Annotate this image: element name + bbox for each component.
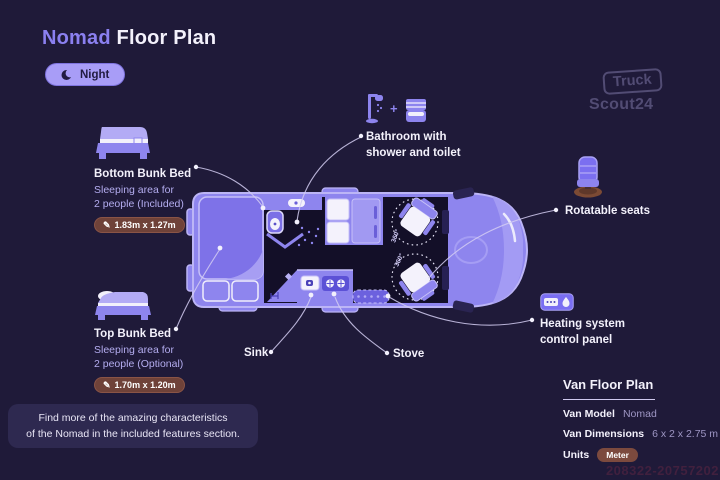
features-note-line-2: of the Nomad in the included features se… xyxy=(8,426,258,442)
units-label: Units xyxy=(563,449,589,461)
spec-row-dimensions: Van Dimensions 6 x 2 x 2.75 m xyxy=(563,428,718,440)
shower-screen xyxy=(267,234,303,247)
van-interior: 360° 360° xyxy=(199,187,523,313)
swivel-seats: 360° 360° xyxy=(389,192,443,307)
van-model-value: Nomad xyxy=(623,408,657,420)
bottom-bunk-title: Bottom Bunk Bed xyxy=(94,168,191,180)
dinette-cushion xyxy=(327,199,349,220)
van-dimensions-label: Van Dimensions xyxy=(563,428,644,440)
page-title-rest: Floor Plan xyxy=(111,27,217,49)
top-bunk-dimensions: 1.70m x 1.20m xyxy=(115,380,176,390)
night-mode-label: Night xyxy=(80,69,109,81)
top-bunk-title: Top Bunk Bed xyxy=(94,328,185,340)
bathroom-label-1: Bathroom with xyxy=(366,130,461,146)
roof-tab xyxy=(322,188,358,195)
callout-bathroom: + Bathroom with shower and toilet xyxy=(366,90,461,161)
rotation-label-rear: 360° xyxy=(393,252,406,268)
cab-console xyxy=(455,237,487,263)
swivel-seat-rear xyxy=(395,258,443,307)
pencil-icon: ✎ xyxy=(103,381,111,390)
rotation-circle-rear xyxy=(392,254,438,300)
page-title-model: Nomad xyxy=(42,27,111,49)
entry-step xyxy=(353,290,389,303)
stove-label: Stove xyxy=(393,347,424,363)
side-tab xyxy=(322,305,358,312)
stove-burners xyxy=(322,276,349,291)
top-bunk-desc-2: 2 people (Optional) xyxy=(94,357,185,371)
callout-top-bunk: Top Bunk Bed Sleeping area for 2 people … xyxy=(94,288,185,393)
spec-row-model: Van Model Nomad xyxy=(563,408,718,420)
heating-label-1: Heating system xyxy=(540,317,625,333)
connector-dots xyxy=(174,134,558,355)
shower-icon xyxy=(366,90,384,124)
features-note: Find more of the amazing characteristics… xyxy=(8,404,258,448)
kitchen-counter xyxy=(267,270,389,303)
plus-sign: + xyxy=(390,101,398,116)
callout-rotatable-seats: Rotatable seats xyxy=(565,155,650,220)
van-model-label: Van Model xyxy=(563,408,615,420)
shower-spray xyxy=(298,227,319,246)
heating-label-2: control panel xyxy=(540,333,625,349)
pillow xyxy=(203,281,229,301)
connector-lines xyxy=(176,137,556,353)
vanity-sink xyxy=(288,199,305,207)
heating-panel-icon xyxy=(540,293,574,311)
rotatable-seats-label: Rotatable seats xyxy=(565,204,650,220)
floorplan-infographic: 360° 360° xyxy=(0,0,720,480)
fixed-bed xyxy=(199,197,263,301)
callout-heating-panel: Heating system control panel xyxy=(540,293,625,348)
kitchen-sink xyxy=(301,276,319,290)
rotation-label-front: 360° xyxy=(389,228,401,244)
cab xyxy=(442,187,523,313)
top-bunk-desc-1: Sleeping area for xyxy=(94,343,185,357)
van-body xyxy=(187,188,527,312)
page-title: Nomad Floor Plan xyxy=(42,27,216,50)
moon-icon xyxy=(61,69,73,81)
truckscout24-logo: Truck Scout24 xyxy=(589,70,662,114)
side-mirror-bottom xyxy=(452,300,474,313)
pencil-icon: ✎ xyxy=(103,221,111,230)
side-mirror-top xyxy=(452,187,474,200)
toilet xyxy=(267,211,283,233)
rear-bumper-bottom xyxy=(187,265,194,291)
pillow xyxy=(232,281,258,301)
spec-panel: Van Floor Plan Van Model Nomad Van Dimen… xyxy=(563,377,718,462)
spec-row-units: Units Meter xyxy=(563,448,718,462)
van-outline xyxy=(193,193,527,307)
watermark-id: 208322-20757202 xyxy=(606,463,719,478)
bottom-bunk-desc-1: Sleeping area for xyxy=(94,183,191,197)
bunk-bed-icon xyxy=(94,288,152,322)
bottom-bunk-dimensions: 1.83m x 1.27m xyxy=(115,220,176,230)
bunk-bed-icon xyxy=(94,124,152,162)
units-meter-badge[interactable]: Meter xyxy=(597,448,638,462)
dinette xyxy=(325,197,383,245)
bathroom-label-2: shower and toilet xyxy=(366,146,461,162)
swivel-seat-icon xyxy=(571,155,605,199)
features-note-line-1: Find more of the amazing characteristics xyxy=(8,410,258,426)
callout-bottom-bunk: Bottom Bunk Bed Sleeping area for 2 peop… xyxy=(94,124,191,233)
logo-scout-text: Scout24 xyxy=(589,96,662,114)
interior-floor xyxy=(264,197,448,303)
sink-label: Sink xyxy=(244,346,268,362)
rotation-circle-front xyxy=(392,199,438,245)
bathroom-area xyxy=(264,197,322,247)
bottom-bunk-desc-2: 2 people (Included) xyxy=(94,197,191,211)
windshield-band xyxy=(492,196,523,304)
bottom-bunk-dimension-badge: ✎ 1.83m x 1.27m xyxy=(94,217,185,233)
swivel-seat-front xyxy=(395,192,443,241)
top-bunk-dimension-badge: ✎ 1.70m x 1.20m xyxy=(94,377,185,393)
logo-truck-box: Truck xyxy=(602,68,662,95)
night-mode-toggle[interactable]: Night xyxy=(45,63,125,86)
van-dimensions-value: 6 x 2 x 2.75 m xyxy=(652,428,718,440)
spec-panel-title: Van Floor Plan xyxy=(563,377,655,400)
side-tab-rear xyxy=(219,304,257,311)
dinette-cushion xyxy=(327,222,349,243)
toilet-icon xyxy=(404,97,428,124)
